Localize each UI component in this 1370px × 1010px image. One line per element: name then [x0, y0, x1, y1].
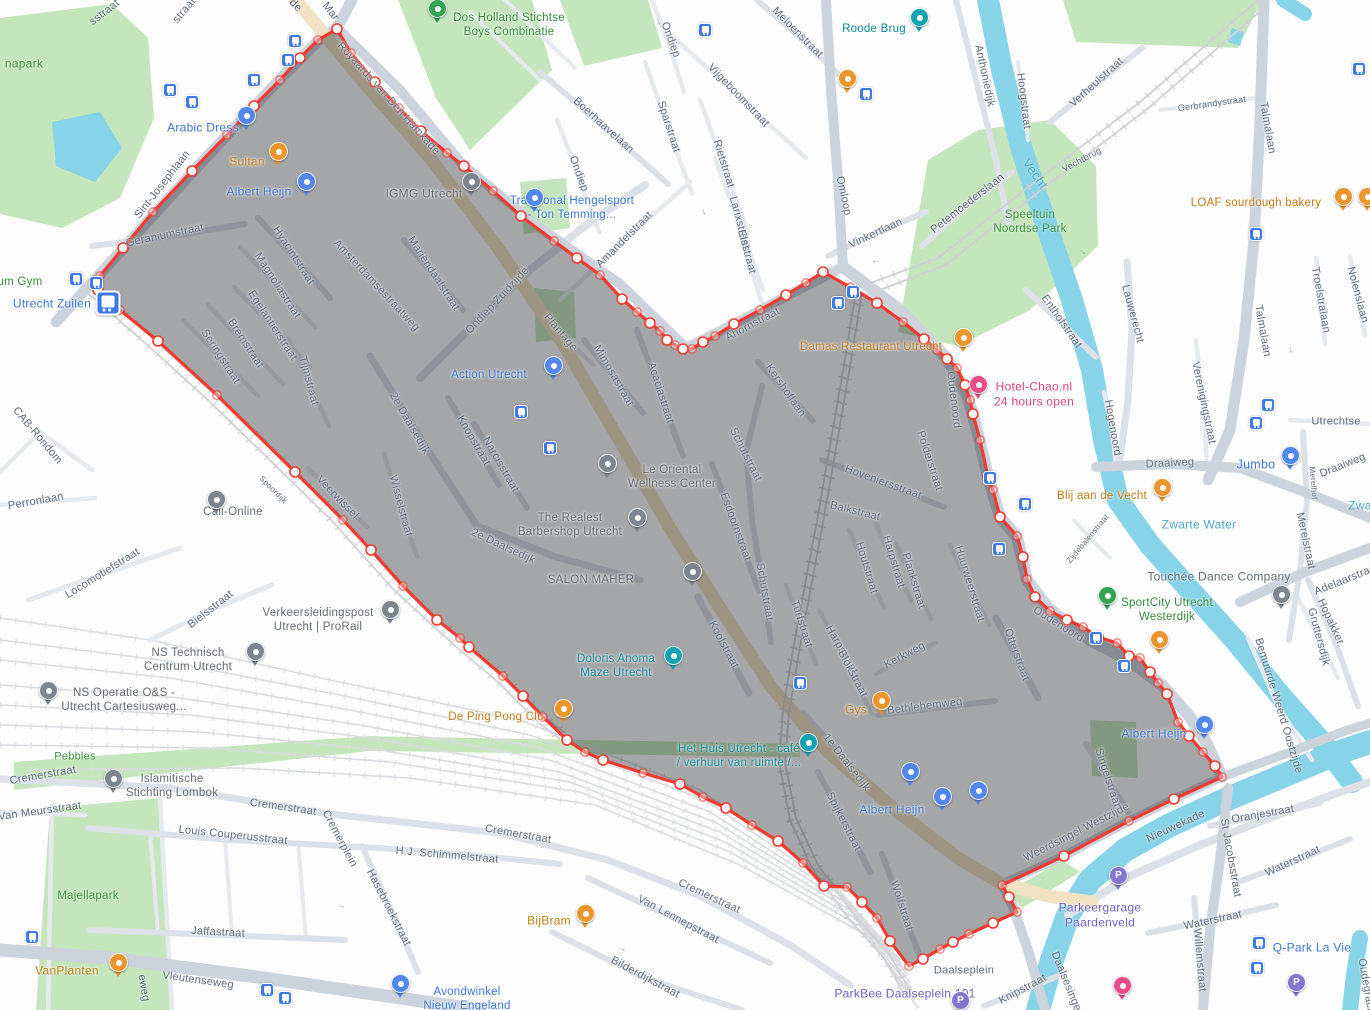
- street-label: Bremstraat: [224, 317, 266, 372]
- street-label: Oranjestraat: [1231, 803, 1296, 827]
- albert-heijn-pin-icon[interactable]: [1195, 715, 1213, 739]
- park-label: Majellapark: [57, 889, 119, 903]
- albert-heijn-pin-icon[interactable]: [933, 787, 951, 811]
- bus-stop-icon[interactable]: [1089, 631, 1103, 645]
- street-label: Polderstraat: [913, 429, 945, 492]
- poi-label[interactable]: Het Huis Utrecht - café / verhuur van ru…: [677, 742, 802, 770]
- street-label: Talmalaan: [1256, 101, 1278, 155]
- street-label: Huurweerstraat: [951, 544, 987, 623]
- bus-stop-icon[interactable]: [69, 272, 83, 286]
- poi-label[interactable]: LOAF sourdough bakery: [1191, 196, 1322, 210]
- street-label: Esdoornstraat: [716, 491, 753, 563]
- water-label: Vecht: [1019, 156, 1051, 193]
- poi-label[interactable]: SportCity Utrecht Westerdijk: [1121, 596, 1213, 624]
- blij-aan-de-vecht-pin-icon[interactable]: [1153, 478, 1171, 502]
- street-label: Balkstraat: [828, 499, 881, 524]
- bus-stop-icon[interactable]: [831, 296, 845, 310]
- street-label: Blokstraat: [834, 648, 870, 700]
- restaurant-pin-icon[interactable]: [838, 69, 856, 93]
- street-label: Wisselstraat: [385, 474, 414, 538]
- vanplanten-pin-icon[interactable]: [109, 953, 127, 977]
- poi-label[interactable]: um Gym: [0, 275, 42, 289]
- poi-label[interactable]: Damas Restaurant Utrecht: [800, 340, 942, 354]
- damas-restaurant-pin-icon[interactable]: [954, 328, 972, 352]
- oneway-arrow-icon: →: [895, 473, 909, 488]
- poi-label[interactable]: Albert Heijn: [859, 803, 924, 818]
- street-label: Vleutenseweg: [161, 969, 234, 992]
- street-label: Daalseplein: [934, 964, 994, 977]
- sultan-pin-icon[interactable]: [269, 142, 287, 166]
- hengelsport-pin-icon[interactable]: [525, 188, 543, 212]
- map-canvas[interactable]: sstraatstraatdeMarRoyaards van Den Hamka…: [0, 0, 1370, 1010]
- street-label: Waterstraat: [1183, 908, 1244, 933]
- street-label: St Jacobsstraat: [1216, 818, 1243, 899]
- street-label: Meloenstraat: [769, 5, 826, 62]
- bus-stop-icon[interactable]: [1018, 497, 1032, 511]
- albert-heijn-pin-icon[interactable]: [297, 172, 315, 196]
- street-label: Oudenoord: [1030, 604, 1086, 646]
- parkbee-parking-pin-icon[interactable]: P: [951, 991, 969, 1010]
- street-label: Perronlaan: [7, 491, 65, 514]
- street-label: Cremerstraat: [484, 823, 552, 848]
- ping-pong-club-pin-icon[interactable]: [554, 699, 572, 723]
- street-label: Bilderdijkstraat: [608, 954, 682, 1002]
- street-label: Adelaarstraat: [1313, 561, 1370, 599]
- hotel-chao-pin-icon[interactable]: [969, 375, 987, 399]
- street-label: 2e Daalsedijk: [386, 391, 432, 458]
- street-label: Acaciastraat: [644, 361, 676, 426]
- street-label: Waterstraat: [1263, 843, 1322, 880]
- street-label: Otterstraat: [1000, 627, 1031, 683]
- street-label: Elsstraat: [734, 229, 759, 276]
- oneway-arrow-icon: →: [615, 941, 630, 957]
- igmg-utrecht-pin-icon[interactable]: [462, 172, 480, 196]
- street-label: Nolenslaan: [1343, 265, 1370, 324]
- poi-label[interactable]: Islamitische Stichting Lombok: [126, 772, 218, 800]
- bus-stop-icon[interactable]: [1250, 961, 1264, 975]
- street-label: Vechtbrug: [1061, 145, 1104, 175]
- street-label: Mimosastraat: [590, 343, 636, 409]
- street-label: Locomotiefstraat: [63, 546, 142, 603]
- poi-label[interactable]: Action Utrecht: [451, 368, 527, 382]
- street-label: Oudenoord: [943, 371, 963, 430]
- street-label: Veerwissel: [313, 474, 361, 523]
- bus-stop-icon[interactable]: [185, 95, 199, 109]
- oneway-arrow-icon: →: [1284, 344, 1298, 356]
- street-label: Sint-Josephlaan: [132, 148, 193, 221]
- street-label: Larixstraat: [726, 195, 753, 251]
- bus-stop-icon[interactable]: [25, 930, 39, 944]
- street-label: Geraniumstraat: [125, 221, 205, 251]
- restaurant-pin-icon[interactable]: [1358, 187, 1370, 211]
- street-label: Koolstraat: [705, 619, 741, 671]
- street-label: Merelhof: [1307, 466, 1320, 500]
- street-label: Gruttersdijk: [1304, 607, 1332, 668]
- jumbo-pin-icon[interactable]: [1281, 446, 1299, 470]
- bus-stop-icon[interactable]: [278, 991, 292, 1005]
- poi-label[interactable]: Avondwinkel Nieuw Engeland: [423, 985, 510, 1010]
- poi-label[interactable]: Hotel-Chao.nl 24 hours open: [994, 379, 1074, 408]
- bijbram-pin-icon[interactable]: [576, 904, 594, 928]
- street-label: Weerdsingel Westzijde: [1022, 801, 1132, 866]
- street-label: Mariëndaalstraat: [404, 234, 462, 313]
- street-label: Bethlehemweg: [887, 696, 964, 719]
- street-label: sstraat: [87, 0, 123, 29]
- street-label: Schutstraat: [726, 426, 764, 484]
- street-label: Gerbrandystraat: [1177, 94, 1247, 114]
- paardenveld-parking-pin-icon[interactable]: P: [1109, 866, 1127, 890]
- street-label: H.J. Schimmelstraat: [395, 845, 499, 867]
- poi-label[interactable]: Gys: [845, 703, 867, 718]
- street-label: Petemoederslaan: [928, 171, 1007, 237]
- map-label-layer: sstraatstraatdeMarRoyaards van Den Hamka…: [0, 0, 1370, 1010]
- poi-label[interactable]: Arabic Dress: [167, 121, 239, 136]
- street-label: Tijmstraat: [295, 355, 321, 407]
- poi-label[interactable]: The Realest Barbershop Utrecht: [518, 511, 622, 539]
- stichting-lombok-pin-icon[interactable]: [104, 769, 122, 793]
- street-label: Zijdebalenstraat: [1065, 513, 1112, 566]
- street-label: Sparstraat: [653, 100, 682, 155]
- poi-label[interactable]: Roode Brug: [842, 22, 906, 36]
- street-label: Cremerplein: [318, 808, 359, 870]
- bus-stop-icon[interactable]: [163, 83, 177, 97]
- oneway-arrow-icon: →: [652, 15, 667, 29]
- street-label: Omloop: [832, 175, 853, 217]
- street-label: Ondiep: [657, 20, 682, 59]
- street-label: Draaiweg: [1145, 456, 1194, 472]
- bus-stop-icon[interactable]: [1252, 936, 1266, 950]
- street-label: Hopakker: [1314, 597, 1347, 647]
- oneway-arrow-icon: →: [749, 368, 765, 383]
- shopping-pin-icon[interactable]: [901, 762, 919, 786]
- street-label: Kershoflaan: [762, 362, 808, 420]
- poi-label[interactable]: Q-Park La Vie: [1273, 941, 1351, 956]
- poi-label[interactable]: Albert Heijn: [1121, 727, 1186, 742]
- street-label: Spijkerstraat: [822, 790, 863, 853]
- hotel-pin-icon[interactable]: [1113, 976, 1131, 1000]
- street-label: Cremerstraat: [9, 764, 77, 789]
- bus-stop-icon[interactable]: [89, 276, 103, 290]
- street-label: straat: [171, 0, 200, 26]
- street-label: Utrechtse: [1311, 415, 1360, 428]
- arabic-dress-pin-icon[interactable]: [237, 106, 255, 130]
- oneway-arrow-icon: →: [871, 256, 881, 268]
- street-label: Vijgeboomstraat: [704, 61, 771, 130]
- poi-label[interactable]: Le Oriental Wellness Center: [628, 463, 716, 491]
- oneway-arrow-icon: →: [611, 439, 626, 455]
- gys-pin-icon[interactable]: [872, 691, 890, 715]
- poi-label[interactable]: De Ping Pong Clu: [448, 710, 543, 724]
- poi-label[interactable]: Utrecht Zuilen: [13, 297, 91, 312]
- street-label: Wolfstraat: [887, 879, 916, 932]
- street-label: Ondiep-Zuidzijde: [463, 265, 532, 338]
- poi-label[interactable]: Doloris Anoma Maze Utrecht: [577, 652, 655, 680]
- poi-label[interactable]: Verkeersleidingspost Utrecht | ProRail: [262, 606, 373, 634]
- cali-online-pin-icon[interactable]: [207, 490, 225, 514]
- poi-label[interactable]: Jumbo: [1237, 457, 1276, 472]
- roode-brug-pin-icon[interactable]: [910, 8, 928, 32]
- street-label: Cremerstraat: [249, 797, 317, 820]
- street-label: Talmalaan: [1251, 304, 1273, 358]
- street-label: Jaffastraat: [191, 925, 246, 941]
- bus-stop-icon[interactable]: [983, 471, 997, 485]
- street-label: Enthofstraat: [1038, 293, 1085, 352]
- oneway-arrow-icon: →: [335, 899, 347, 913]
- street-label: Harpstraat: [879, 534, 908, 589]
- shopping-pin-icon[interactable]: [969, 781, 987, 805]
- street-label: Cremerstraat: [676, 877, 743, 918]
- street-label: Rietstraat: [709, 138, 736, 189]
- street-label: Houtstraat: [852, 541, 880, 596]
- street-label: Turfstraat: [787, 599, 815, 650]
- bus-stop-icon[interactable]: [1261, 398, 1275, 412]
- bus-stop-icon[interactable]: [281, 53, 295, 67]
- street-label: Hoogstraat: [1013, 72, 1033, 130]
- street-label: Egelantierstraat: [244, 288, 299, 363]
- bus-stop-icon[interactable]: [247, 73, 261, 87]
- poi-label[interactable]: SALON MAHER: [548, 573, 634, 587]
- verkeersleidingspost-pin-icon[interactable]: [381, 600, 399, 624]
- poi-label[interactable]: BijBram: [527, 914, 571, 929]
- loaf-bakery-pin-icon[interactable]: [1334, 187, 1352, 211]
- street-label: CAB-Rondom: [9, 405, 64, 468]
- park-label: Pebbles: [54, 750, 96, 763]
- salon-maher-pin-icon[interactable]: [683, 562, 701, 586]
- bus-stop-icon[interactable]: [260, 983, 274, 997]
- street-label: Louis Couperusstraat: [178, 824, 288, 849]
- bus-stop-icon[interactable]: [992, 542, 1006, 556]
- doloris-maze-pin-icon[interactable]: [664, 646, 682, 670]
- ns-operatie-pin-icon[interactable]: [39, 681, 57, 705]
- street-label: 2e Daalsedijk: [469, 526, 537, 567]
- street-label: 1e Daalsedijk: [819, 732, 872, 795]
- bus-stop-icon[interactable]: [543, 441, 557, 455]
- street-label: Willemstraat: [1190, 928, 1209, 992]
- bus-stop-icon[interactable]: [846, 285, 860, 299]
- oneway-arrow-icon: →: [838, 432, 854, 447]
- street-label: Bielsstraat: [186, 588, 237, 632]
- poi-label[interactable]: NS Technisch Centrum Utrecht: [144, 646, 232, 674]
- street-label: Merelstraat: [1292, 511, 1317, 570]
- water-label: Zwarte Water: [1162, 518, 1237, 533]
- street-label: Anthoniedijk: [971, 44, 997, 108]
- bus-stop-icon[interactable]: [1249, 227, 1263, 241]
- restaurant-pin-icon[interactable]: [1150, 630, 1168, 654]
- street-label: Spoordijk: [257, 474, 289, 506]
- street-label: Hyacintstraat: [269, 224, 317, 288]
- street-label: Van Meursstraat: [0, 800, 82, 825]
- poi-label[interactable]: Blij aan de Vecht: [1057, 489, 1147, 503]
- poi-label[interactable]: Dos Holland Stichtse Boys Combinatie: [453, 11, 565, 39]
- street-label: eweg: [134, 973, 152, 1002]
- bus-stop-icon[interactable]: [1117, 659, 1131, 673]
- poi-label[interactable]: Albert Heijn: [226, 185, 291, 200]
- street-label: Nieuwekade: [1145, 808, 1208, 847]
- poi-label[interactable]: NS Operatie O&S - Utrecht Cartesiusweg..…: [61, 686, 186, 714]
- train-station-icon[interactable]: [96, 291, 121, 316]
- ns-technisch-pin-icon[interactable]: [246, 642, 264, 666]
- street-label: Hogenoord: [1100, 399, 1123, 457]
- street-label: Plankstraat: [898, 551, 928, 610]
- soccer-club-pin-icon[interactable]: [428, 0, 446, 23]
- street-label: Hasebroekstraat: [363, 867, 413, 948]
- poi-label[interactable]: Sultan: [229, 155, 265, 170]
- bus-stop-icon[interactable]: [793, 676, 807, 690]
- street-label: Knipstraat: [997, 972, 1049, 1008]
- le-oriental-pin-icon[interactable]: [598, 454, 616, 478]
- het-huis-pin-icon[interactable]: [799, 733, 817, 757]
- oneway-arrow-icon: →: [524, 553, 538, 568]
- street-label: Plantage: [540, 311, 579, 354]
- the-realest-pin-icon[interactable]: [628, 508, 646, 532]
- park-label: napark: [5, 57, 43, 72]
- poi-label[interactable]: Touchée Dance Company: [1147, 570, 1290, 585]
- bus-stop-icon[interactable]: [288, 34, 302, 48]
- touchee-dance-pin-icon[interactable]: [1272, 585, 1290, 609]
- street-label: de: [286, 0, 304, 15]
- street-label: Oudegracht: [1354, 957, 1370, 1010]
- street-label: Singelstraat: [1091, 747, 1123, 809]
- street-label: Hoveniersstraat: [843, 463, 924, 503]
- poi-label[interactable]: IGMG Utrecht: [385, 187, 462, 202]
- street-label: Seringstraat: [197, 327, 242, 387]
- street-label: Magnoliastraat: [251, 251, 303, 322]
- water-label: Zwa: [1348, 499, 1370, 514]
- bus-stop-icon[interactable]: [1352, 62, 1366, 76]
- street-label: Ondiep: [565, 154, 590, 193]
- street-label: Mar: [319, 0, 342, 24]
- street-label: Boerhaavelaan: [570, 95, 636, 157]
- street-label: Ahornstraat: [724, 305, 783, 345]
- sportcity-pin-icon[interactable]: [1098, 586, 1116, 610]
- street-label: Harpstraat: [822, 623, 861, 676]
- bus-stop-icon[interactable]: [514, 405, 528, 419]
- bus-stop-icon[interactable]: [859, 87, 873, 101]
- street-label: Vinkertlaan: [847, 216, 905, 252]
- street-label: Draaiweg: [1318, 451, 1368, 482]
- oneway-arrow-icon: →: [697, 205, 711, 218]
- qpark-parking-pin-icon[interactable]: P: [1287, 973, 1305, 997]
- bus-stop-icon[interactable]: [698, 23, 712, 37]
- oneway-arrow-icon: →: [1075, 244, 1091, 260]
- street-label: Lauwerecht: [1118, 284, 1146, 345]
- street-label: Verenigingstraat: [1188, 361, 1218, 445]
- street-label: Royaards van Den Hamkade: [334, 40, 442, 158]
- avondwinkel-pin-icon[interactable]: [391, 974, 409, 998]
- street-label: Kerkweg: [882, 640, 928, 673]
- park-label: Speeltuin Noordse Park: [993, 208, 1066, 236]
- street-label: Schutstraat: [752, 562, 775, 622]
- street-label: Amandelstraat: [594, 209, 656, 271]
- poi-label[interactable]: VanPlanten: [35, 964, 99, 979]
- street-label: Amsterdamsestraatweg: [330, 237, 422, 334]
- street-label: Troelstralaan: [1308, 266, 1333, 334]
- street-label: Daalsesingel: [1047, 950, 1084, 1010]
- street-label: Verheulstraat: [1067, 55, 1127, 111]
- street-label: Van Lennepstraat: [635, 893, 721, 947]
- street-label: Bemuurde Weerd Oostzijde: [1251, 637, 1305, 776]
- poi-label[interactable]: Parkeergarage Paardenveld: [1059, 900, 1142, 929]
- bus-stop-icon[interactable]: [1249, 416, 1263, 430]
- street-label: Narcisstraat: [479, 435, 521, 495]
- street-label: Knopstraat: [453, 414, 492, 469]
- action-utrecht-pin-icon[interactable]: [544, 356, 562, 380]
